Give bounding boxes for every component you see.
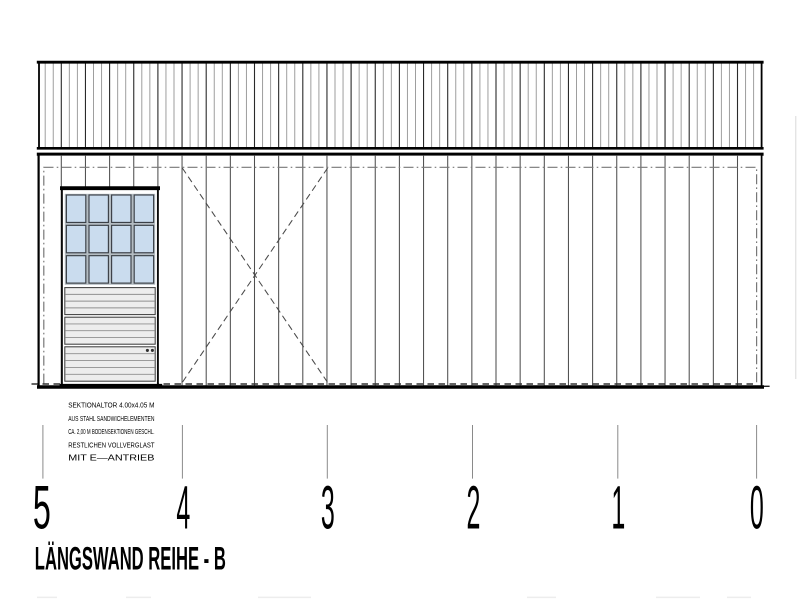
svg-text:MIT E—ANTRIEB: MIT E—ANTRIEB [68,453,154,463]
svg-text:CA. 2,00 M BODENSEKTIONEN GESC: CA. 2,00 M BODENSEKTIONEN GESCHL. [68,428,154,436]
svg-text:3: 3 [321,474,335,542]
svg-text:LÄNGSWAND REIHE - B: LÄNGSWAND REIHE - B [35,541,226,577]
svg-text:SEKTIONALTOR 4.00x4.05 M: SEKTIONALTOR 4.00x4.05 M [68,402,154,410]
svg-text:AUS STAHL SANDWICHELEMENTEN: AUS STAHL SANDWICHELEMENTEN [68,415,155,423]
svg-text:4: 4 [176,474,190,542]
svg-text:2: 2 [467,474,481,542]
svg-text:1: 1 [611,474,625,542]
svg-text:5: 5 [33,475,51,542]
svg-text:RESTLICHEN VOLLVERGLAST: RESTLICHEN VOLLVERGLAST [68,442,154,450]
svg-text:0: 0 [750,474,764,542]
